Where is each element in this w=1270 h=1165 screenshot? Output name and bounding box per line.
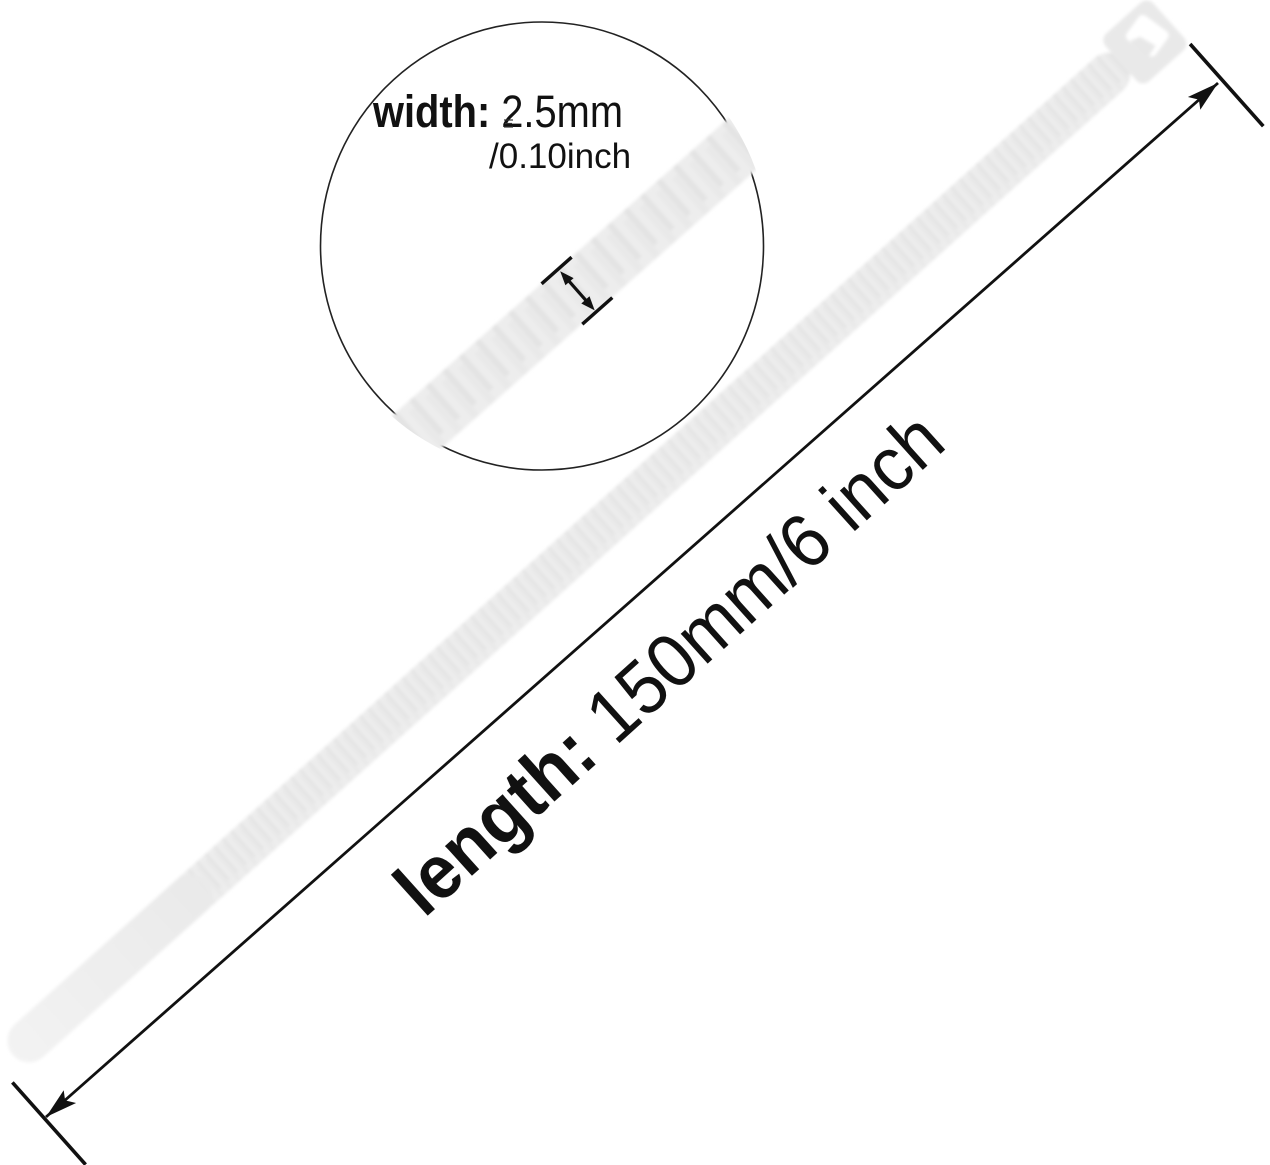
svg-text:width: 2.5mm: width: 2.5mm — [372, 86, 623, 137]
svg-text:/0.10inch: /0.10inch — [489, 137, 631, 176]
